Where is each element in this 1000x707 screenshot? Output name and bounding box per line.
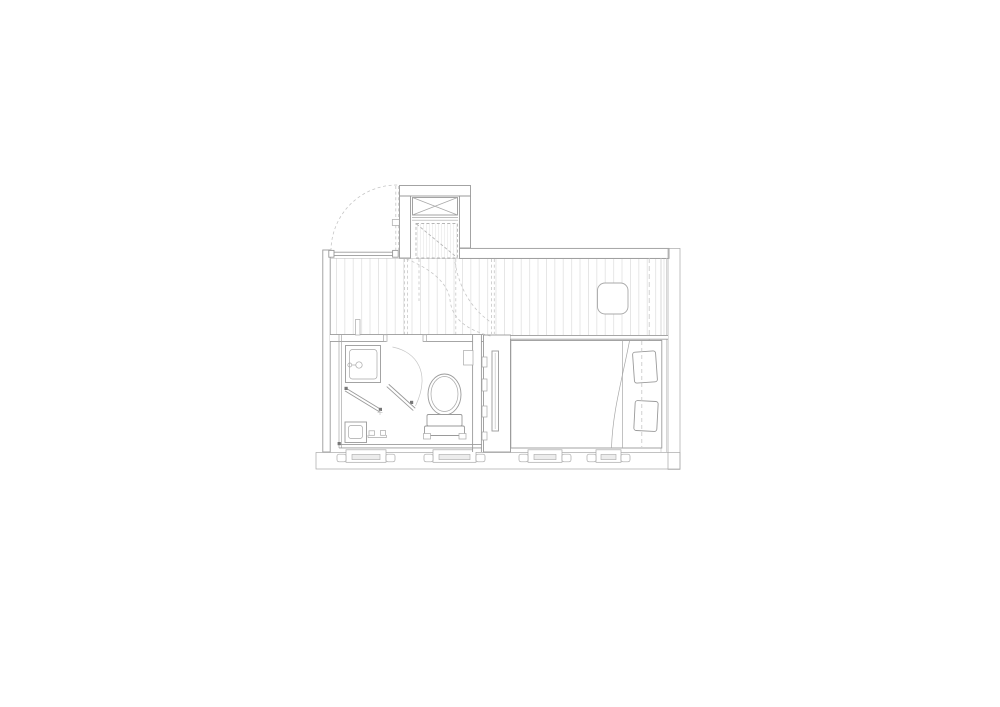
bedroom <box>511 335 669 448</box>
pillow <box>632 351 657 384</box>
hatch-opening-above <box>416 224 458 259</box>
wall-stub <box>356 320 361 336</box>
window-unit <box>528 450 562 463</box>
left-wall <box>323 250 330 452</box>
toilet <box>424 374 467 439</box>
hatched-partition <box>482 335 511 452</box>
page: { "page": { "background_color": "#ffffff… <box>0 0 1000 707</box>
window-unit <box>596 450 621 463</box>
floor-fittings <box>368 431 387 438</box>
window-unit <box>433 450 476 463</box>
bathroom <box>330 335 483 452</box>
wall-niche <box>464 351 474 366</box>
floor-plan-drawing <box>314 180 694 475</box>
window-unit <box>346 450 386 463</box>
bathroom-door <box>387 347 422 410</box>
lift-shaft <box>392 186 470 259</box>
top-wall <box>460 248 670 258</box>
bottom-wall <box>316 450 680 469</box>
shower-tray <box>346 346 381 383</box>
rooflight <box>598 283 629 314</box>
floor-drain <box>345 422 367 443</box>
floor-plan-canvas <box>314 180 694 475</box>
top-left-window <box>329 250 398 257</box>
pillow <box>634 400 659 431</box>
